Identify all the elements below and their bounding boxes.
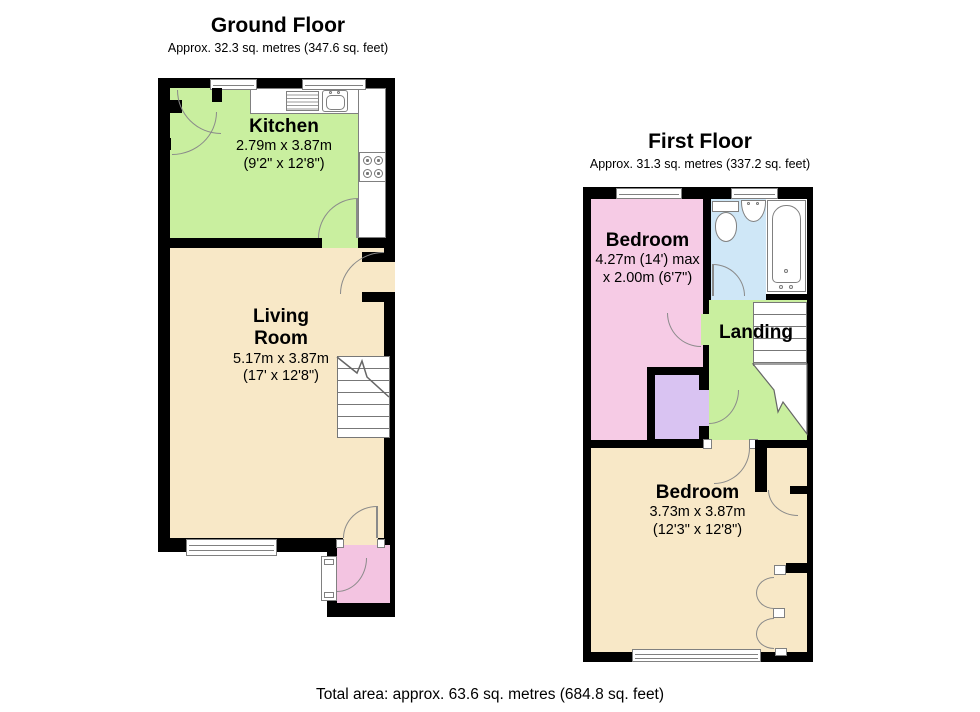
living-room-dim-imperial: (17' x 12'8"): [186, 368, 376, 385]
bedroom-front-name: Bedroom: [590, 230, 705, 252]
bedroom-front-dim-2: x 2.00m (6'7"): [590, 270, 705, 287]
bedroom-front-window-icon: [616, 188, 682, 199]
kitchen-doorway-gap: [322, 238, 358, 248]
kitchen-dim-imperial: (9'2" x 12'8"): [196, 156, 372, 173]
landing-label: Landing: [702, 322, 810, 344]
wardrobe-jamb-bottom: [775, 648, 787, 656]
bedroom-back-label: Bedroom 3.73m x 3.87m (12'3" x 12'8"): [590, 482, 805, 539]
living-room-label: Living Room 5.17m x 3.87m (17' x 12'8"): [186, 306, 376, 385]
bedroom-back-name: Bedroom: [590, 482, 805, 504]
toilet-cistern-icon: [712, 201, 739, 212]
bathtub-icon: [767, 200, 806, 292]
landing-name: Landing: [702, 322, 810, 344]
first-floor-title: First Floor: [550, 130, 850, 155]
wardrobe-jamb-top: [774, 565, 786, 575]
living-room-doorway-gap: [384, 262, 395, 292]
staircase-first-break-line-icon: [753, 364, 807, 436]
ground-floor-subtitle: Approx. 32.3 sq. metres (347.6 sq. feet): [128, 41, 428, 56]
porch-door-jamb-right: [377, 539, 385, 548]
kitchen-sink-icon: [322, 90, 348, 112]
kitchen-dim-metric: 2.79m x 3.87m: [196, 138, 372, 155]
bedroom-back-room: [591, 448, 807, 652]
cupboard-doorway-gap: [699, 390, 709, 426]
toilet-bowl-icon: [715, 212, 737, 242]
ground-floor-title: Ground Floor: [128, 14, 428, 39]
ground-floor-header: Ground Floor Approx. 32.3 sq. metres (34…: [128, 14, 428, 56]
wardrobe-wall-stub: [786, 563, 807, 573]
wardrobe-jamb-middle: [773, 608, 785, 618]
living-room-name: Living Room: [233, 306, 329, 351]
kitchen-label: Kitchen 2.79m x 3.87m (9'2" x 12'8"): [196, 116, 372, 173]
bedroom-back-doorway-gap: [712, 440, 750, 448]
total-area-text: Total area: approx. 63.6 sq. metres (684…: [0, 686, 980, 704]
bedroom-front-label: Bedroom 4.27m (14') max x 2.00m (6'7"): [590, 230, 705, 287]
floorplan-canvas: Ground Floor Approx. 32.3 sq. metres (34…: [0, 0, 980, 712]
bedroom-back-dim-imperial: (12'3" x 12'8"): [590, 522, 805, 539]
living-room-bay-window-icon: [186, 539, 277, 556]
porch-doorway-gap: [343, 538, 378, 545]
first-floor-subtitle: Approx. 31.3 sq. metres (337.2 sq. feet): [550, 157, 850, 172]
side-door-jamb-bottom: [158, 138, 171, 150]
porch-door-jamb-left: [336, 539, 344, 548]
living-room-dim-metric: 5.17m x 3.87m: [186, 351, 376, 368]
bedroom-back-door-jamb-left: [703, 439, 712, 449]
porch-outer-door-icon: [321, 556, 337, 601]
kitchen-window-sink-icon: [302, 79, 366, 90]
cupboard-room: [655, 375, 699, 439]
bedroom-back-window-icon: [632, 649, 761, 662]
bedroom-back-dim-metric: 3.73m x 3.87m: [590, 504, 805, 521]
first-floor-header: First Floor Approx. 31.3 sq. metres (337…: [550, 130, 850, 172]
kitchen-name: Kitchen: [196, 116, 372, 138]
bedroom-front-dim-1: 4.27m (14') max: [590, 252, 705, 269]
drainer-icon: [286, 91, 319, 111]
bathroom-window-icon: [731, 188, 778, 199]
